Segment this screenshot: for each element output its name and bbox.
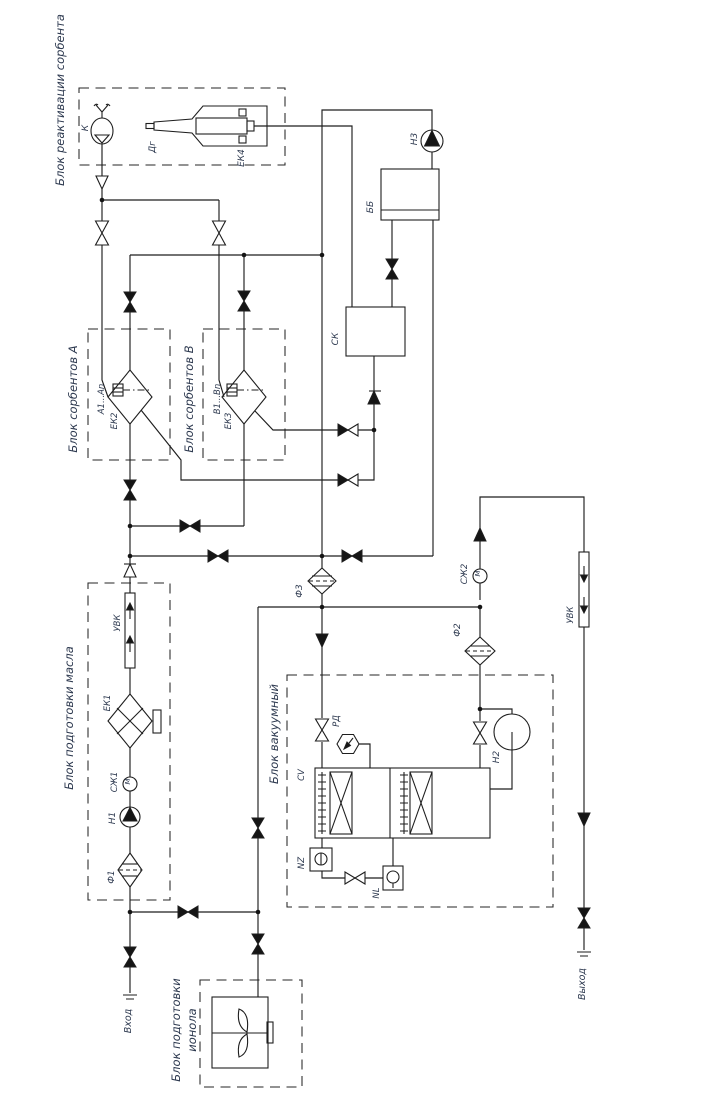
filter-f3: [308, 568, 336, 594]
vacuum-block-outline: [287, 675, 553, 907]
tag-ek2: ЕК2: [110, 413, 120, 430]
motor-szh2: М: [473, 569, 487, 583]
pipe-end-symbols: [123, 952, 591, 999]
tag-ek2-cartridges: А1...Аn: [97, 384, 107, 416]
vacuum-pump-n2: [494, 714, 530, 750]
block-titles: Блок реактивации сорбента Блок сорбентов…: [53, 14, 281, 1082]
oil-prep-block-title: Блок подготовки масла: [62, 646, 76, 790]
tag-dg: Дг: [148, 141, 158, 154]
tag-n3: Н3: [410, 132, 420, 145]
pump-n1: [120, 807, 140, 827]
vacuum-column-cv: [315, 768, 490, 838]
tag-cv: CV: [297, 768, 307, 781]
flow-arrows: [316, 528, 590, 826]
tag-uvk-out: УВК: [566, 606, 576, 624]
shutoff-valve-open: [96, 221, 487, 744]
reactivation-equipment: [91, 104, 267, 146]
tag-f3: Ф3: [295, 584, 305, 598]
tank-bb: [381, 169, 439, 220]
motor-szh1: М: [123, 777, 137, 791]
tag-ek3-cartridges: В1...Вn: [213, 384, 223, 415]
tag-nz: NZ: [297, 857, 307, 869]
tag-f2: Ф2: [453, 623, 463, 637]
szh2-motor-mark: М: [474, 570, 482, 576]
sensor-nl: [383, 866, 403, 890]
pressure-gauge-rd: [337, 735, 359, 754]
tag-szh2: СЖ2: [460, 564, 470, 585]
heater-dg-ek4-symbol: [146, 106, 267, 146]
reactivation-block-title: Блок реактивации сорбента: [53, 14, 67, 186]
tag-n1: Н1: [108, 812, 118, 825]
schematic-page: М М: [0, 0, 723, 1119]
ionol-block-title: Блок подготовкиионола: [169, 978, 199, 1082]
inlet-label: Вход: [123, 1008, 134, 1033]
outlet-label: Выход: [577, 968, 588, 1000]
tag-bb: ББ: [366, 201, 376, 213]
tag-ek4: ЕК4: [237, 149, 247, 167]
vacuum-column-assembly: [310, 735, 490, 891]
tag-k: К: [81, 124, 91, 131]
tag-ek3: ЕК3: [224, 413, 234, 430]
tag-nl: NL: [372, 887, 382, 898]
tag-uvk-oil: УВК: [113, 614, 123, 632]
process-diagram-canvas: М М: [0, 0, 723, 1119]
compressor-k-symbol: [91, 104, 113, 144]
tag-ek1: ЕК1: [103, 695, 113, 712]
sight-glass-uvk-out: [579, 552, 589, 627]
tag-szh1: СЖ1: [110, 772, 120, 793]
block-boundaries: [79, 88, 553, 1087]
sorbent-a-block-title: Блок сорбентов А: [66, 345, 80, 452]
tag-rd: РД: [332, 715, 342, 727]
szh1-motor-mark: М: [124, 778, 132, 784]
sensor-nz: [310, 848, 332, 871]
vessel-ek1: [108, 694, 161, 748]
filter-f2: [465, 637, 495, 665]
sight-glass-uvk-oil: [125, 593, 135, 668]
tag-f1: Ф1: [107, 870, 117, 883]
equipment-labels: К Дг ЕК4 Н3 ББ СК А1...Аn ЕК2 В1...Вn ЕК…: [81, 124, 576, 898]
drain-valve-open: [345, 872, 365, 884]
sorbent-b-block-title: Блок сорбентов В: [182, 345, 196, 452]
pump-n3: [421, 130, 443, 152]
filter-f1: [118, 853, 142, 887]
tag-sk: СК: [331, 332, 341, 345]
ionol-mixer-vessel: [212, 997, 273, 1068]
tank-sk: [346, 307, 405, 356]
tag-n2: Н2: [492, 750, 502, 763]
vacuum-block-title: Блок вакуумный: [267, 683, 281, 784]
